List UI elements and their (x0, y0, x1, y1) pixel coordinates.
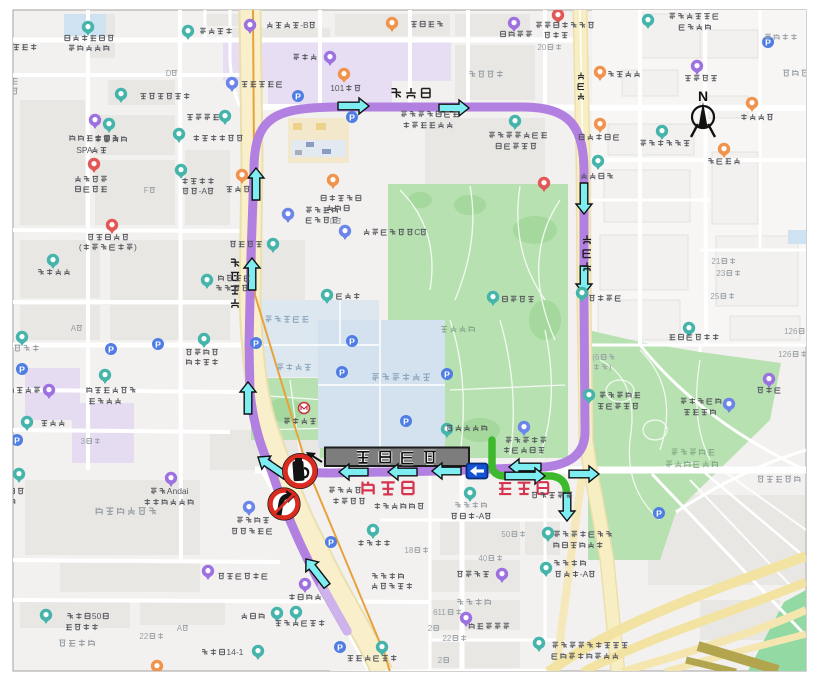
svg-text:D: D (330, 217, 336, 226)
svg-text:P: P (349, 112, 355, 122)
svg-text:22: 22 (442, 634, 451, 643)
svg-text:611: 611 (433, 608, 446, 617)
svg-text:A: A (71, 324, 77, 333)
svg-text:P: P (349, 336, 355, 346)
svg-text:126: 126 (778, 350, 792, 359)
svg-text:P: P (339, 367, 345, 377)
svg-text:22: 22 (139, 632, 148, 641)
svg-text:20: 20 (537, 43, 546, 52)
svg-text:P: P (444, 369, 450, 379)
svg-text:23: 23 (716, 269, 725, 278)
svg-text:D: D (166, 69, 172, 78)
svg-text:2: 2 (438, 656, 443, 665)
svg-text:14-1: 14-1 (226, 647, 243, 657)
svg-text:): ) (134, 242, 137, 252)
svg-text:P: P (155, 339, 161, 349)
svg-text:P: P (403, 416, 409, 426)
svg-text:21: 21 (711, 257, 720, 266)
svg-text:40: 40 (478, 554, 487, 563)
svg-text:25: 25 (710, 292, 719, 301)
svg-text:C: C (414, 227, 420, 237)
svg-text:3: 3 (81, 437, 86, 446)
svg-text:P: P (253, 338, 259, 348)
svg-text:Andai: Andai (167, 486, 189, 496)
svg-text:): ) (609, 363, 612, 372)
svg-text:-A: -A (580, 569, 589, 579)
svg-text:126: 126 (784, 327, 798, 336)
svg-text:101: 101 (330, 83, 344, 93)
svg-text:-B: -B (300, 20, 309, 30)
svg-text:2: 2 (428, 624, 433, 633)
svg-text:-A: -A (476, 511, 485, 521)
svg-text:18: 18 (404, 546, 413, 555)
svg-text:P: P (295, 91, 301, 101)
svg-text:(6: (6 (592, 353, 600, 362)
svg-text:P: P (656, 508, 662, 518)
svg-text:(: ( (79, 242, 82, 252)
svg-text:P: P (328, 537, 334, 547)
svg-text:A: A (177, 624, 183, 633)
svg-text:P: P (108, 344, 114, 354)
svg-text:P: P (19, 364, 25, 374)
svg-text:P: P (14, 435, 20, 445)
svg-text:SPA: SPA (76, 145, 93, 155)
svg-text:N: N (698, 88, 708, 104)
svg-text:F: F (144, 186, 149, 195)
svg-text:P: P (337, 642, 343, 652)
svg-text:50: 50 (501, 530, 510, 539)
svg-text:-A: -A (199, 186, 208, 196)
svg-text:50: 50 (92, 611, 102, 621)
